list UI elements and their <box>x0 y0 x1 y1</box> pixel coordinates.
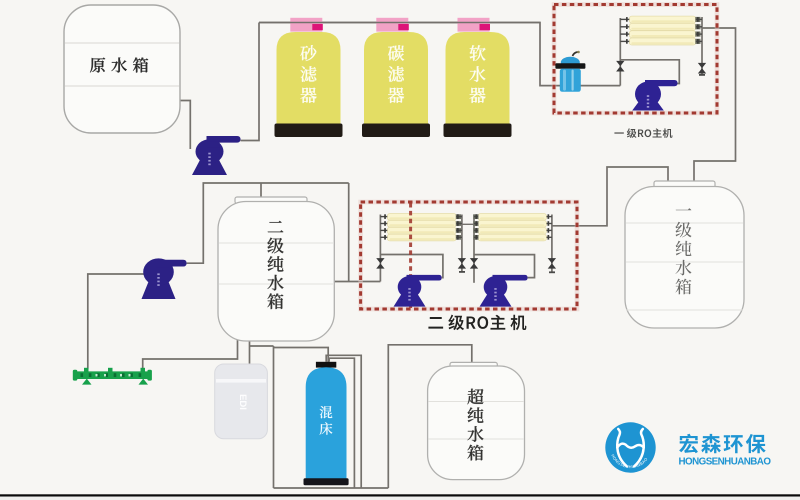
svg-text:HONGSENHUANBAO: HONGSENHUANBAO <box>679 456 772 467</box>
svg-text:EDI: EDI <box>237 394 248 410</box>
